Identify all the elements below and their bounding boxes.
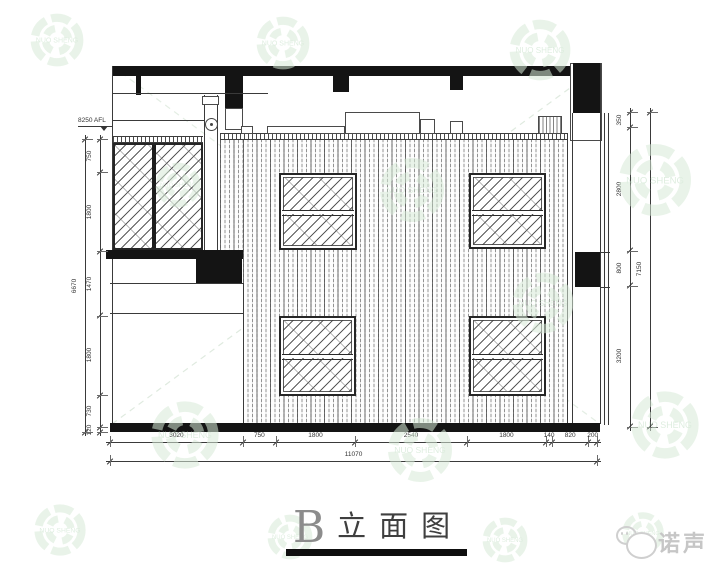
footer-brand: 诺声 bbox=[606, 518, 716, 562]
watermark-logo-icon: NUO SHENG bbox=[28, 498, 92, 562]
dim-label: 3200 bbox=[616, 336, 624, 376]
dim-line bbox=[630, 108, 631, 431]
dim-line bbox=[106, 461, 601, 462]
dim-witness bbox=[627, 112, 638, 113]
svg-text:NUO SHENG: NUO SHENG bbox=[394, 445, 445, 455]
dim-label: 200 bbox=[573, 432, 613, 440]
dim-label: 6670 bbox=[71, 266, 79, 306]
title-underline bbox=[286, 549, 467, 556]
dim-witness bbox=[647, 112, 658, 113]
svg-text:NUO SHENG: NUO SHENG bbox=[160, 183, 196, 189]
watermark-logo-icon: NUO SHENG bbox=[502, 12, 578, 88]
dim-witness bbox=[627, 427, 638, 428]
speech-bubble-icon-2 bbox=[626, 532, 657, 559]
dim-label: 1800 bbox=[486, 432, 526, 440]
watermark-logo-icon: NUO SHENG bbox=[24, 7, 90, 73]
dim-witness bbox=[110, 436, 111, 447]
svg-text:NUO SHENG: NUO SHENG bbox=[36, 37, 78, 44]
svg-text:NUO SHENG: NUO SHENG bbox=[487, 538, 523, 544]
watermark-logo-icon: NUO SHENG bbox=[505, 265, 581, 341]
dim-label: 1800 bbox=[86, 192, 94, 232]
dim-witness bbox=[276, 436, 277, 447]
dim-label: 1800 bbox=[295, 432, 335, 440]
watermark-logo-icon: NUO SHENG bbox=[250, 10, 316, 76]
svg-text:NUO SHENG: NUO SHENG bbox=[519, 299, 568, 308]
drawing-title: B立面图 bbox=[278, 502, 478, 553]
svg-text:NUO SHENG: NUO SHENG bbox=[516, 46, 565, 55]
dim-label: 750 bbox=[239, 432, 279, 440]
dim-label: 1470 bbox=[86, 264, 94, 304]
svg-text:NUO SHENG: NUO SHENG bbox=[262, 40, 304, 47]
dim-line bbox=[650, 108, 651, 431]
dim-witness bbox=[597, 455, 598, 466]
dim-witness bbox=[467, 436, 468, 447]
dim-line bbox=[85, 135, 86, 436]
dim-witness bbox=[82, 432, 93, 433]
footer-brand-text: 诺声 bbox=[658, 526, 708, 558]
dim-label: 1800 bbox=[86, 335, 94, 375]
watermark-logo-icon: NUO SHENG bbox=[372, 150, 452, 230]
title-letter: B bbox=[293, 502, 325, 553]
dim-witness bbox=[110, 455, 111, 466]
dim-label: 800 bbox=[616, 248, 624, 288]
dim-label: 11070 bbox=[334, 451, 374, 459]
svg-text:NUO SHENG: NUO SHENG bbox=[626, 175, 684, 186]
dim-witness bbox=[647, 427, 658, 428]
watermark-logo-icon: NUO SHENG bbox=[150, 157, 206, 213]
dim-witness bbox=[97, 316, 108, 317]
dim-witness bbox=[597, 436, 598, 447]
dim-label: 2540 bbox=[391, 432, 431, 440]
dim-witness bbox=[97, 432, 108, 433]
dimension-layer: 3020750180025401800140820200110707501800… bbox=[0, 0, 720, 576]
dim-witness bbox=[97, 395, 108, 396]
dim-witness bbox=[355, 436, 356, 447]
dim-witness bbox=[97, 427, 108, 428]
svg-text:NUO SHENG: NUO SHENG bbox=[386, 185, 437, 195]
svg-text:NUO SHENG: NUO SHENG bbox=[39, 527, 80, 534]
dim-label: 3020 bbox=[156, 432, 196, 440]
watermark-logo-icon: NUO SHENG bbox=[380, 410, 460, 490]
dim-witness bbox=[97, 251, 108, 252]
elevation-drawing-sheet: 8250 AFL 3020750180025401800140820200110… bbox=[0, 0, 720, 576]
dim-label: 7150 bbox=[636, 249, 644, 289]
watermark-logo-icon: NUO SHENG bbox=[623, 383, 707, 467]
dim-witness bbox=[627, 127, 638, 128]
title-text: 立面图 bbox=[337, 511, 463, 543]
watermark-logo-icon: NUO SHENG bbox=[477, 512, 533, 568]
dim-label: 350 bbox=[616, 100, 624, 140]
dim-witness bbox=[97, 139, 108, 140]
dim-witness bbox=[97, 172, 108, 173]
dim-label: 2800 bbox=[616, 169, 624, 209]
dim-label: 750 bbox=[86, 136, 94, 176]
dim-line bbox=[100, 135, 101, 436]
dim-witness bbox=[82, 139, 93, 140]
